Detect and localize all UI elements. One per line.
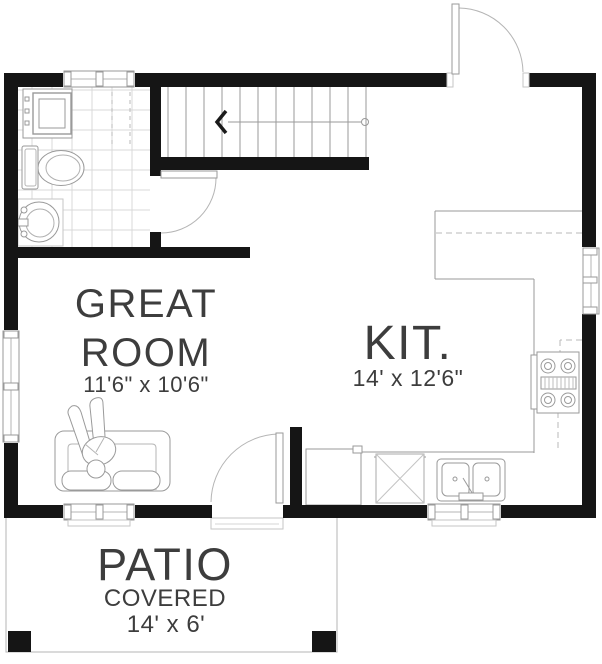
entry-door-leaf (452, 4, 459, 74)
top-wall-window (63, 71, 135, 87)
washer-dryer (23, 89, 72, 138)
bathroom-south-wall (4, 247, 250, 258)
great-room-label-line2: ROOM (81, 331, 211, 375)
great-room-dimensions: 11'6" x 10'6" (83, 372, 209, 397)
dishwasher (376, 454, 424, 503)
great-room-label-line1: GREAT (75, 282, 217, 326)
pedestal-sink (18, 199, 63, 246)
great-room-kitchen-wall (290, 427, 302, 518)
patio-door-swing-arc (211, 434, 279, 502)
great-room-fixtures (55, 398, 170, 491)
bathroom-door-jamb-wall (150, 232, 161, 247)
sofa (55, 431, 170, 491)
bathroom-door-leaf (161, 171, 217, 178)
bathroom-fixtures (18, 89, 84, 246)
stair-arrow-origin (362, 119, 369, 126)
toilet (22, 146, 84, 189)
refrigerator (306, 446, 362, 505)
peninsula-counter (435, 211, 582, 453)
floor-plan-drawing: GREAT ROOM 11'6" x 10'6" KIT. 14' x 12'6… (0, 0, 602, 664)
range (531, 352, 579, 413)
entry-door (447, 4, 529, 87)
kitchen-sink (437, 459, 505, 501)
bathroom-door (161, 171, 217, 233)
right-wall-window (582, 247, 599, 314)
patio-door (211, 433, 283, 503)
kitchen-dimensions: 14' x 12'6" (353, 365, 464, 391)
stair-base-wall (150, 157, 369, 170)
patio-post-left (8, 631, 31, 652)
left-wall-window (3, 330, 19, 443)
entry-door-swing-arc (459, 8, 523, 72)
bottom-wall-window-kitchen (427, 504, 501, 526)
patio-dimensions: 14' x 6' (127, 611, 206, 638)
upper-cabinets-dashed (436, 233, 582, 452)
patio-door-leaf (276, 433, 283, 503)
bathroom-door-swing-arc (161, 178, 216, 233)
floor-plan-page: GREAT ROOM 11'6" x 10'6" KIT. 14' x 12'6… (0, 0, 602, 664)
kitchen-label: KIT. (364, 317, 453, 370)
patio-label: PATIO (97, 539, 233, 590)
door-threshold (211, 518, 283, 529)
staircase (168, 87, 369, 157)
bathroom-dashed-cabinets (112, 92, 130, 148)
patio-descriptor: COVERED (104, 585, 226, 612)
patio-post-right (312, 631, 336, 652)
bottom-wall-window-great-room (63, 504, 135, 526)
